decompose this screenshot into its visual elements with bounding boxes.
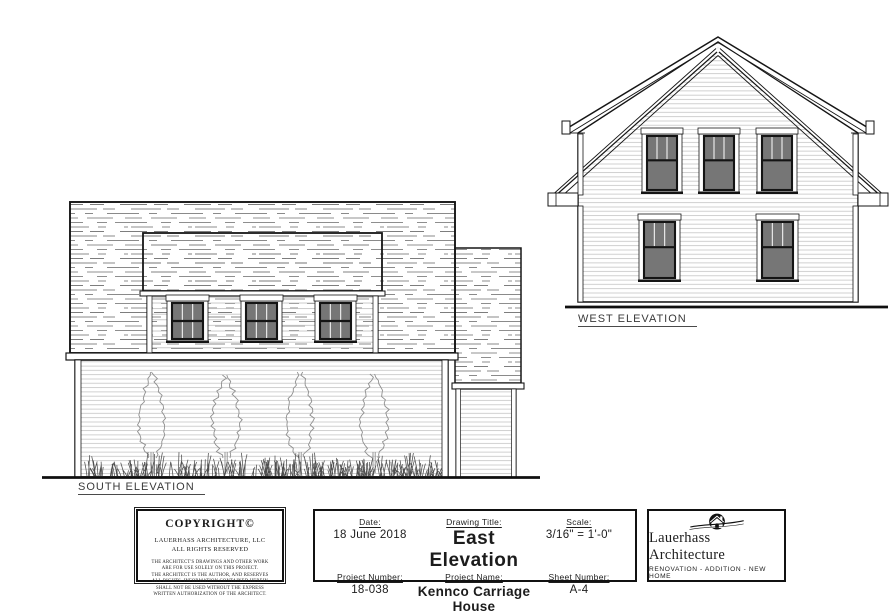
wing-roof bbox=[455, 248, 521, 383]
window bbox=[314, 295, 357, 343]
window bbox=[240, 295, 283, 343]
window bbox=[756, 128, 798, 194]
title-block-fields: Date: 18 June 2018 Drawing Title: East E… bbox=[313, 509, 637, 582]
field-date: Date: 18 June 2018 bbox=[323, 517, 417, 541]
drawing-title-value: East Elevation bbox=[417, 528, 531, 572]
field-sheet-number: Sheet Number: A-4 bbox=[531, 572, 627, 596]
south-elevation-label: SOUTH ELEVATION bbox=[78, 481, 205, 495]
field-scale: Scale: 3/16" = 1'-0" bbox=[531, 517, 627, 541]
firm-name: Lauerhass Architecture bbox=[649, 530, 784, 564]
main-eave-band bbox=[66, 353, 458, 360]
west-elevation-label: WEST ELEVATION bbox=[578, 313, 697, 327]
west-elevation-drawing bbox=[548, 37, 888, 307]
window bbox=[756, 214, 799, 282]
field-project-name: Project Name: Kennco Carriage House bbox=[417, 572, 531, 614]
wing-wall bbox=[456, 389, 516, 477]
copyright-owner: LAUERHASS ARCHITECTURE, LLC ALL RIGHTS R… bbox=[155, 536, 266, 555]
shed-dormer bbox=[140, 233, 385, 353]
window bbox=[698, 128, 740, 194]
south-elevation-drawing bbox=[42, 202, 540, 478]
south-right-wing bbox=[452, 248, 524, 477]
field-drawing-title: Drawing Title: East Elevation bbox=[417, 517, 531, 572]
copyright-notice: THE ARCHITECT'S DRAWINGS AND OTHER WORK … bbox=[152, 560, 269, 599]
window bbox=[641, 128, 683, 194]
window bbox=[638, 214, 681, 282]
first-floor-wall bbox=[75, 360, 448, 477]
window bbox=[166, 295, 209, 343]
field-project-number: Project Number: 18-038 bbox=[323, 572, 417, 596]
copyright-title: COPYRIGHT© bbox=[165, 518, 255, 530]
firm-tagline: RENOVATION - ADDITION - NEW HOME bbox=[649, 566, 784, 580]
drawing-sheet: { "sheet": { "background": "#ffffff", "i… bbox=[0, 0, 890, 588]
copyright-block: COPYRIGHT© LAUERHASS ARCHITECTURE, LLC A… bbox=[136, 509, 284, 582]
wing-eave-band bbox=[452, 383, 524, 389]
dormer-roof bbox=[143, 233, 382, 291]
elevation-drawings-canvas bbox=[0, 0, 890, 588]
firm-logo-block: Lauerhass Architecture RENOVATION - ADDI… bbox=[647, 509, 786, 582]
